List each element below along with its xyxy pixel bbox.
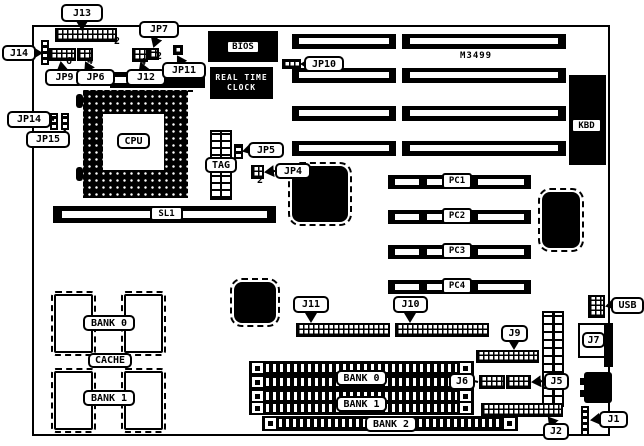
jp6-pin4-number: 4 [87, 56, 93, 67]
chipset-qfp-2 [542, 192, 580, 248]
jp15-label: JP15 [26, 131, 70, 148]
usb-header [588, 295, 605, 318]
isa-slot-2-long [402, 68, 566, 83]
j13-pin2-number: 2 [114, 36, 120, 47]
pc3-label: PC3 [442, 243, 472, 259]
jp5-jumper [234, 144, 243, 159]
j12-pin4-number: 4 [140, 57, 146, 68]
j10-header [395, 323, 489, 337]
cpu-label: CPU [117, 133, 150, 149]
tag-label: TAG [205, 157, 237, 173]
isa-slot-3-long [402, 106, 566, 121]
jp14-label: JP14 [7, 111, 51, 128]
usb-label: USB [611, 297, 644, 314]
sl1-label: SL1 [150, 206, 183, 221]
j14-label: J14 [2, 45, 36, 61]
isa-slot-4-short [292, 141, 396, 156]
ps2-tab-top [580, 378, 585, 385]
jp5-label: JP5 [248, 142, 284, 158]
cache-bank1-label: BANK 1 [83, 390, 135, 406]
simm-bank1-label: BANK 1 [336, 396, 387, 412]
motherboard-diagram: 2 6 4 4 2 P CPU BIOS REAL TIME CLOCK M34… [0, 0, 644, 446]
j1-header [581, 406, 589, 436]
simm-bank2-label: BANK 2 [365, 416, 417, 432]
pc1-label: PC1 [442, 173, 472, 189]
jp10-jumper [282, 59, 301, 69]
jp11-connector [173, 45, 183, 55]
jp4-label: JP4 [275, 163, 311, 179]
jp9-pin6-number: 6 [66, 56, 72, 67]
j6-label: J6 [449, 373, 475, 390]
j9-label: J9 [501, 325, 528, 342]
model-number: M3499 [460, 51, 492, 61]
socket-tab-top [76, 94, 83, 108]
j2-header [481, 403, 563, 417]
jp10-label: JP10 [304, 56, 344, 72]
jp7-label: JP7 [139, 21, 179, 38]
j6-header-a [479, 375, 505, 389]
ps2-tab-bottom [580, 390, 585, 397]
isa-slot-1-long [402, 34, 566, 49]
j13-header [55, 28, 117, 42]
rtc-label-line1: REAL TIME [215, 73, 267, 83]
j5-label: J5 [544, 373, 569, 390]
jp15-jumper [61, 113, 69, 130]
isa-slot-1-short [292, 34, 396, 49]
ps2-connector [584, 372, 612, 403]
rtc-chip: REAL TIME CLOCK [210, 67, 273, 99]
cache-bank0-label: BANK 0 [83, 315, 135, 331]
j2-label: J2 [543, 423, 569, 440]
jp14-jumper [50, 113, 58, 130]
pc4-label: PC4 [442, 278, 472, 294]
chipset-qfp-3 [234, 282, 276, 323]
j6-header-b [506, 375, 531, 389]
j13-label: J13 [61, 4, 103, 22]
pc2-label: PC2 [442, 208, 472, 224]
pci-slot-pc3: PC3 [388, 245, 531, 259]
bios-label: BIOS [226, 40, 260, 54]
jp11-label: JP11 [162, 62, 206, 79]
j1-label: J1 [599, 411, 628, 428]
kbd-label: KBD [571, 118, 602, 133]
pci-slot-pc1: PC1 [388, 175, 531, 189]
j11-header [296, 323, 390, 337]
j11-label: J11 [293, 296, 329, 313]
j14-connector [41, 40, 49, 65]
j10-label: J10 [393, 296, 428, 313]
pci-slot-pc4: PC4 [388, 280, 531, 294]
j9-header [476, 350, 539, 363]
jp7-pin2-number: 2 [156, 51, 162, 62]
jp6-label: JP6 [76, 69, 115, 86]
j5-connector-strip [542, 311, 564, 407]
simm-bank0-label: BANK 0 [336, 370, 387, 386]
rtc-label-line2: CLOCK [227, 83, 256, 93]
jp4-pin2-number: 2 [257, 175, 263, 186]
socket-tab-bottom [76, 167, 83, 181]
j7-edge-connector [604, 323, 613, 367]
isa-slot-3-short [292, 106, 396, 121]
cache-label: CACHE [88, 353, 132, 368]
j12-label: J12 [126, 69, 166, 86]
pci-slot-pc2: PC2 [388, 210, 531, 224]
isa-slot-4-long [402, 141, 566, 156]
j7-label: J7 [582, 332, 605, 348]
